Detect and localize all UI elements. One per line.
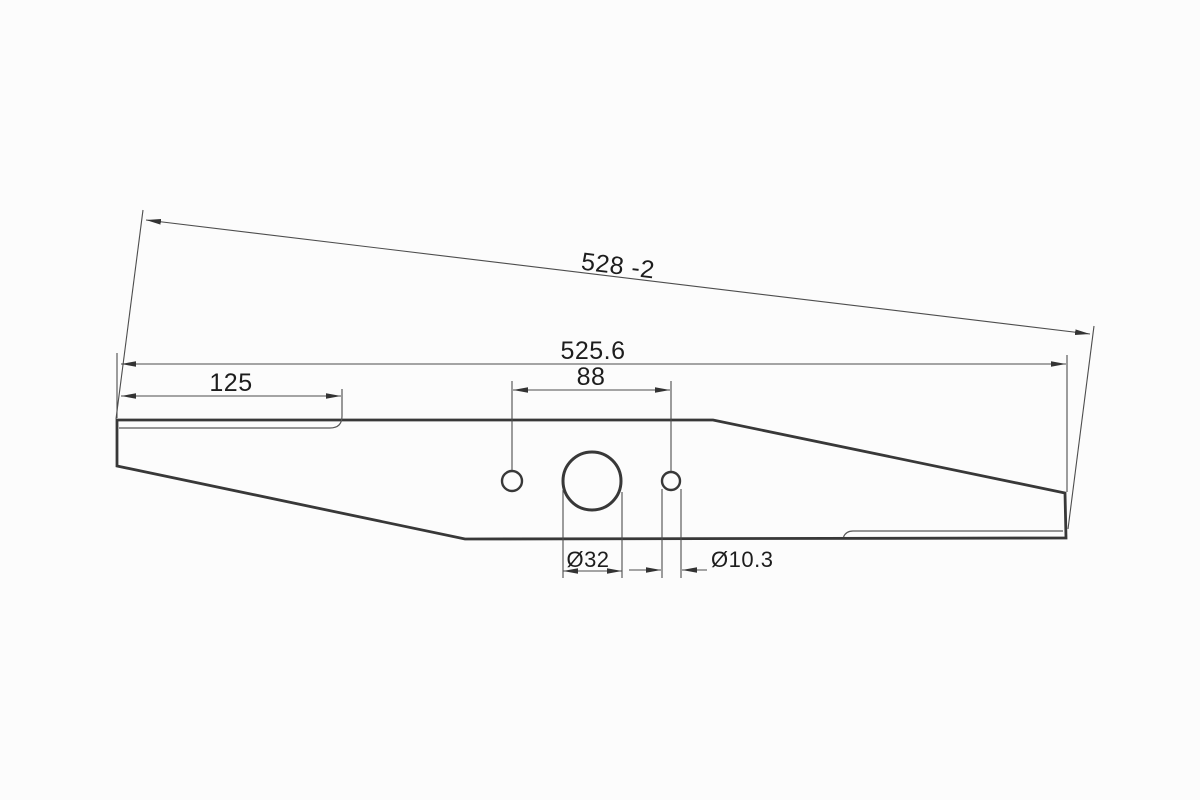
dim-label-overall-diagonal: 528 -2 <box>580 248 657 285</box>
dim-label-overall-length: 525.6 <box>560 337 625 365</box>
dim-528-extension-right <box>1068 326 1094 529</box>
dim-label-cutting-edge: 125 <box>209 369 252 397</box>
technical-drawing-canvas: 528 -2 525.6 125 88 Ø32 Ø10.3 <box>0 0 1200 800</box>
blade-drawing-svg: 528 -2 525.6 125 88 Ø32 Ø10.3 <box>0 0 1200 800</box>
right-mount-hole <box>662 472 680 490</box>
dim-528-extension-left <box>116 210 143 419</box>
dim-label-center-hole-diameter: Ø32 <box>566 547 609 572</box>
dim-label-side-hole-diameter: Ø10.3 <box>711 547 773 572</box>
dim-label-hole-spacing: 88 <box>577 363 606 391</box>
center-bore-hole <box>563 452 621 510</box>
left-mount-hole <box>502 471 522 491</box>
